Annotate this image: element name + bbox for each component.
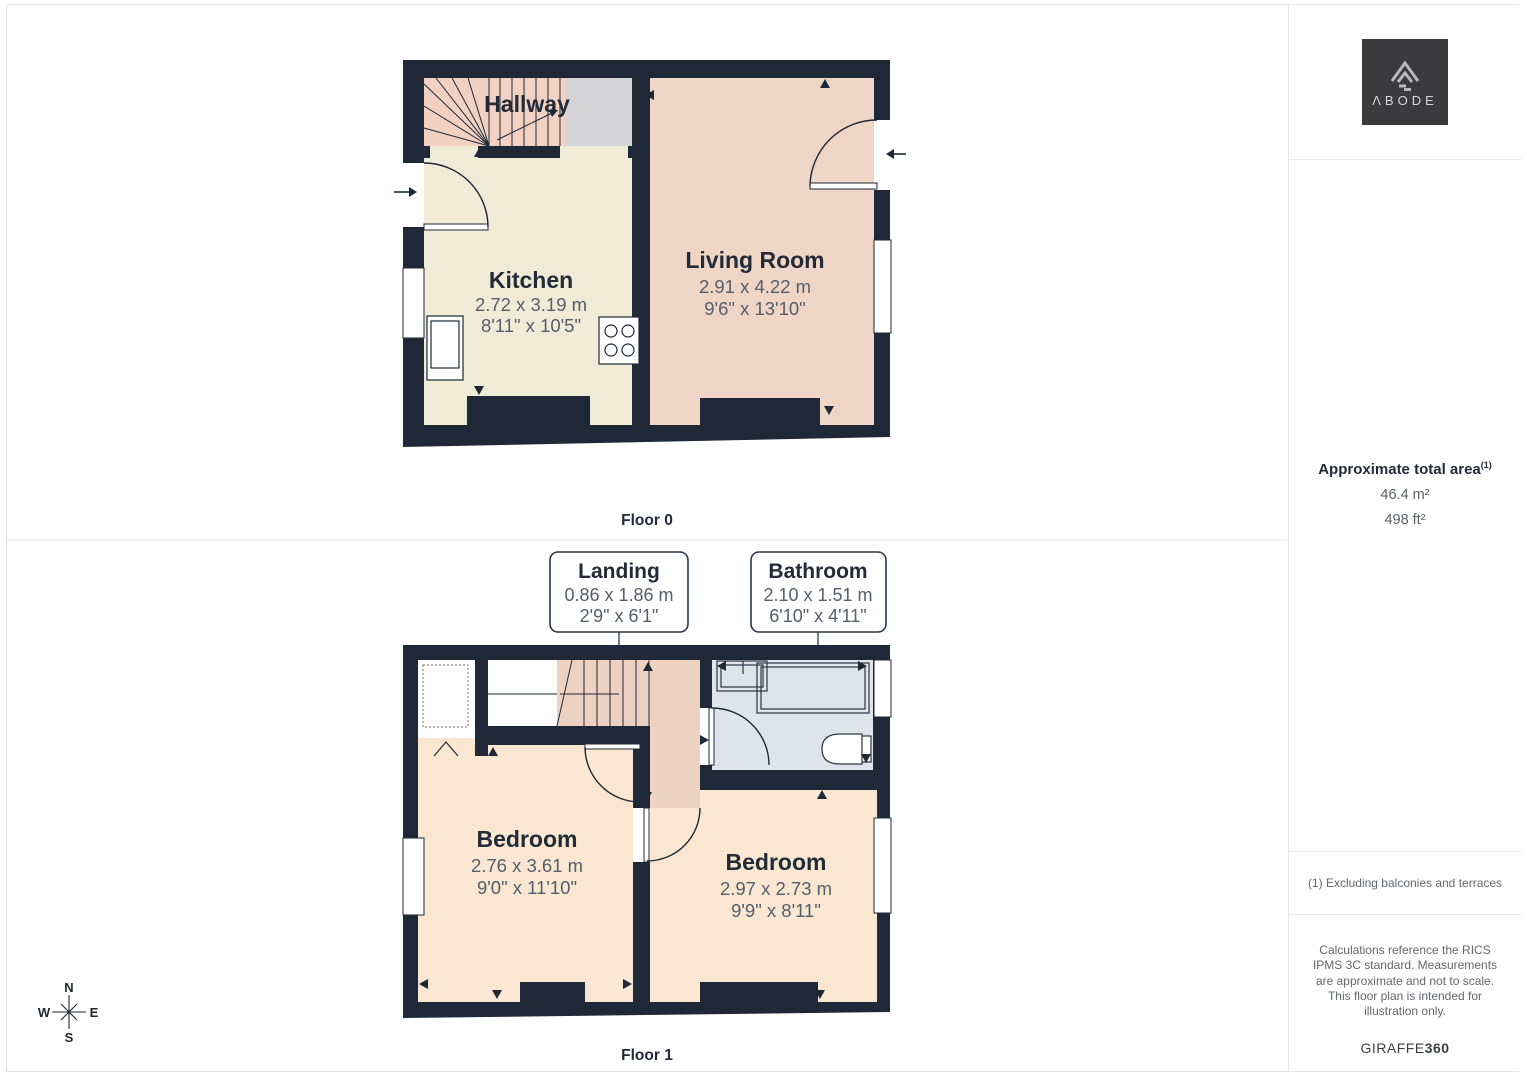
giraffe360-brand: GIRAFFE360: [1360, 1040, 1449, 1056]
living-room-dim-metric: 2.91 x 4.22 m: [699, 276, 811, 297]
floor1-label: Floor 1: [621, 1047, 673, 1064]
logo-section: ΛBODE: [1289, 5, 1521, 160]
bathroom-dim-metric: 2.10 x 1.51 m: [763, 585, 872, 605]
landing-dim-metric: 0.86 x 1.86 m: [564, 585, 673, 605]
area-footnote: (1) Excluding balconies and terraces: [1308, 876, 1502, 890]
abode-logo-mark-icon: [1385, 57, 1425, 91]
bedroom-right-dim-imperial: 9'9" x 8'11": [731, 900, 821, 921]
kitchen-dim-metric: 2.72 x 3.19 m: [475, 294, 587, 315]
bedroom-right-dim-metric: 2.97 x 2.73 m: [720, 878, 832, 899]
window: [874, 660, 891, 717]
bedroom-right-label: Bedroom: [726, 849, 827, 875]
bedroom-left-dim-imperial: 9'0" x 11'10": [477, 877, 577, 898]
compass-west: W: [38, 1005, 51, 1020]
legal-section: Calculations reference the RICS IPMS 3C …: [1289, 915, 1521, 1071]
compass-south: S: [65, 1030, 74, 1045]
entry-door-opening: [403, 163, 424, 227]
area-section: Approximate total area(1) 46.4 m² 498 ft…: [1289, 160, 1521, 852]
info-sidebar: ΛBODE Approximate total area(1) 46.4 m² …: [1288, 5, 1521, 1071]
compass-east: E: [90, 1005, 99, 1020]
bathroom-label: Bathroom: [768, 560, 867, 583]
landing-dim-imperial: 2'9" x 6'1": [580, 606, 659, 626]
total-area-metric: 46.4 m²: [1289, 487, 1521, 503]
toilet-icon: [822, 734, 871, 764]
kitchen-dim-imperial: 8'11" x 10'5": [481, 315, 581, 336]
floor0-label: Floor 0: [621, 512, 673, 529]
kitchen-opening: [430, 146, 478, 159]
window: [874, 240, 891, 333]
footnote-marker: (1): [1481, 460, 1492, 470]
shower: [757, 663, 869, 713]
compass-north: N: [64, 980, 73, 995]
floor0-plan: Hallway Kitchen 2.72 x 3.19 m 8'11" x 10…: [394, 60, 906, 447]
hallway-label: Hallway: [484, 91, 570, 117]
floor1-plan: Bedroom 2.76 x 3.61 m 9'0" x 11'10" Bedr…: [403, 645, 891, 1018]
disclaimer-text: Calculations reference the RICS IPMS 3C …: [1312, 943, 1498, 1020]
hallway-stair-landing: [565, 78, 632, 146]
stove-icon: [599, 317, 639, 364]
landing-label: Landing: [578, 560, 660, 583]
living-room-dim-imperial: 9'6" x 13'10": [704, 298, 805, 319]
bathroom-dim-imperial: 6'10" x 4'11": [769, 606, 866, 626]
window: [403, 838, 424, 915]
kitchen-opening-2: [560, 146, 628, 159]
floorplan-canvas: Hallway Kitchen 2.72 x 3.19 m 8'11" x 10…: [0, 0, 1288, 1080]
footnote-section: (1) Excluding balconies and terraces: [1289, 852, 1521, 915]
compass-icon: N E S W: [38, 980, 99, 1045]
abode-logo: ΛBODE: [1362, 39, 1448, 125]
bedroom-left-dim-metric: 2.76 x 3.61 m: [471, 855, 583, 876]
abode-logo-text: ΛBODE: [1372, 93, 1438, 108]
total-area-title: Approximate total area(1): [1289, 460, 1521, 478]
total-area-imperial: 498 ft²: [1289, 512, 1521, 528]
window: [874, 818, 891, 913]
bedroom-left-label: Bedroom: [477, 826, 578, 852]
closet: [418, 660, 475, 738]
window: [403, 268, 424, 338]
living-room-label: Living Room: [685, 247, 824, 273]
kitchen-sink: [427, 316, 463, 380]
kitchen-label: Kitchen: [489, 267, 573, 293]
